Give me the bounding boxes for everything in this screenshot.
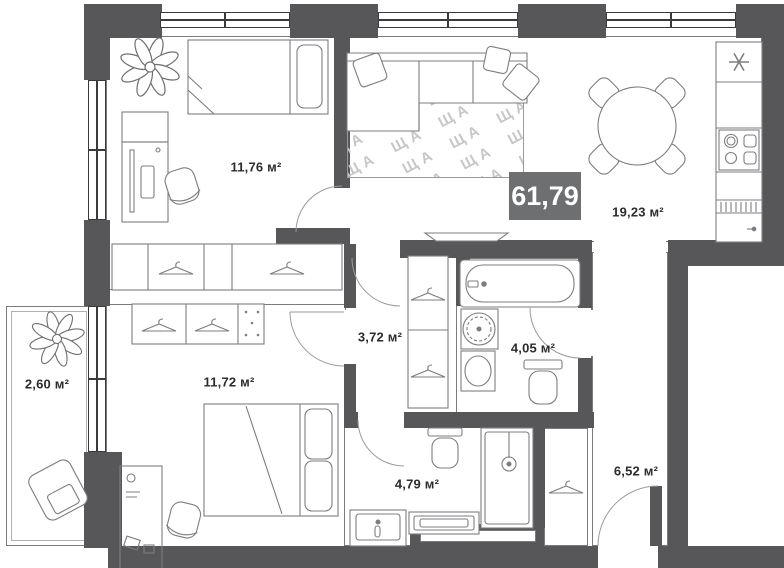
- area-label-bedroom-2: 11,72 м²: [204, 375, 255, 390]
- area-label-entry-hall: 6,52 м²: [614, 464, 658, 479]
- furniture-layer: [0, 0, 784, 568]
- entry-door-arc: [598, 486, 658, 546]
- bed-double: [204, 404, 338, 516]
- desk-chair: [164, 500, 203, 541]
- balcony-chair: [26, 457, 90, 523]
- washing-machine-icon: [461, 309, 498, 349]
- desk: [122, 112, 168, 222]
- wardrobe: [132, 304, 264, 344]
- shower-sink: [350, 510, 406, 546]
- toilet-icon: [428, 428, 462, 468]
- plant-icon: [23, 305, 92, 374]
- area-label-shower-room: 4,79 м²: [395, 477, 439, 492]
- dining-table: [598, 87, 676, 165]
- shower-cabin: [481, 428, 533, 528]
- total-area-badge: 61,79: [509, 172, 581, 220]
- bathroom-sink: [461, 351, 495, 391]
- area-label-bathroom: 4,05 м²: [511, 341, 555, 356]
- door-arc: [358, 420, 404, 466]
- kitchen-counter: [716, 42, 762, 242]
- vent-shelf: [425, 233, 508, 241]
- cabinet: [409, 512, 479, 534]
- door-arc: [290, 312, 344, 366]
- area-label-bedroom-1: 11,76 м²: [231, 160, 282, 175]
- door-arc: [296, 186, 342, 232]
- sofa-cushion: [483, 46, 511, 74]
- bathtub: [460, 260, 580, 307]
- floor-plan: ЩА ЩА ЩА ЩА ЩА ЩА ЩА ЩА ЩА ЩА ЩА ЩА ЩА Щ…: [0, 0, 784, 568]
- hanger-icon: [549, 481, 583, 493]
- entry-closet-hanger: [549, 481, 583, 493]
- wardrobe: [112, 244, 342, 290]
- area-label-balcony: 2,60 м²: [25, 377, 69, 392]
- toilet-icon: [524, 360, 562, 404]
- area-label-hallway: 3,72 м²: [358, 330, 402, 345]
- bed-single: [188, 40, 328, 114]
- desk: [120, 466, 162, 568]
- area-label-living-kitchen: 19,23 м²: [612, 205, 664, 220]
- hall-wardrobe: [408, 256, 448, 408]
- plant-icon: [111, 28, 190, 107]
- door-arc: [352, 258, 400, 306]
